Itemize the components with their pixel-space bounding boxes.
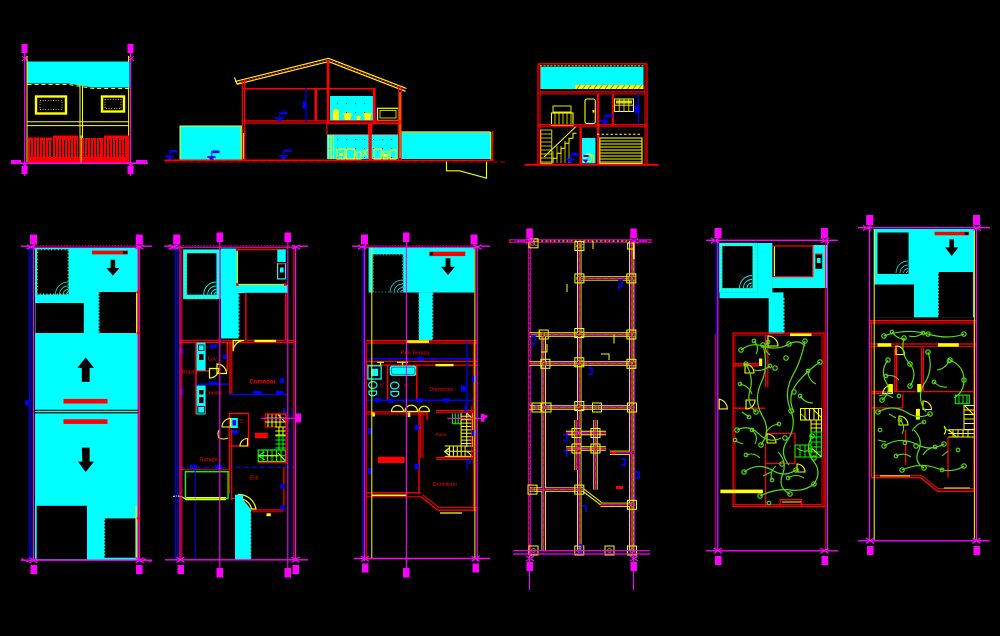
svg-text:B°: B° <box>380 382 385 387</box>
svg-text:Comedor: Comedor <box>250 380 277 386</box>
svg-text:Paso: Paso <box>436 432 447 438</box>
svg-text:Ropa: Ropa <box>182 370 195 376</box>
svg-text:P.de Terraza: P.de Terraza <box>401 351 430 357</box>
svg-text:Dormitorio: Dormitorio <box>430 387 454 393</box>
svg-text:Entr.: Entr. <box>250 476 260 482</box>
svg-text:Lav.: Lav. <box>208 357 218 363</box>
svg-text:Garage: Garage <box>200 457 218 463</box>
svg-text:Dormitorio: Dormitorio <box>433 482 457 488</box>
svg-text:B°: B° <box>240 419 245 424</box>
